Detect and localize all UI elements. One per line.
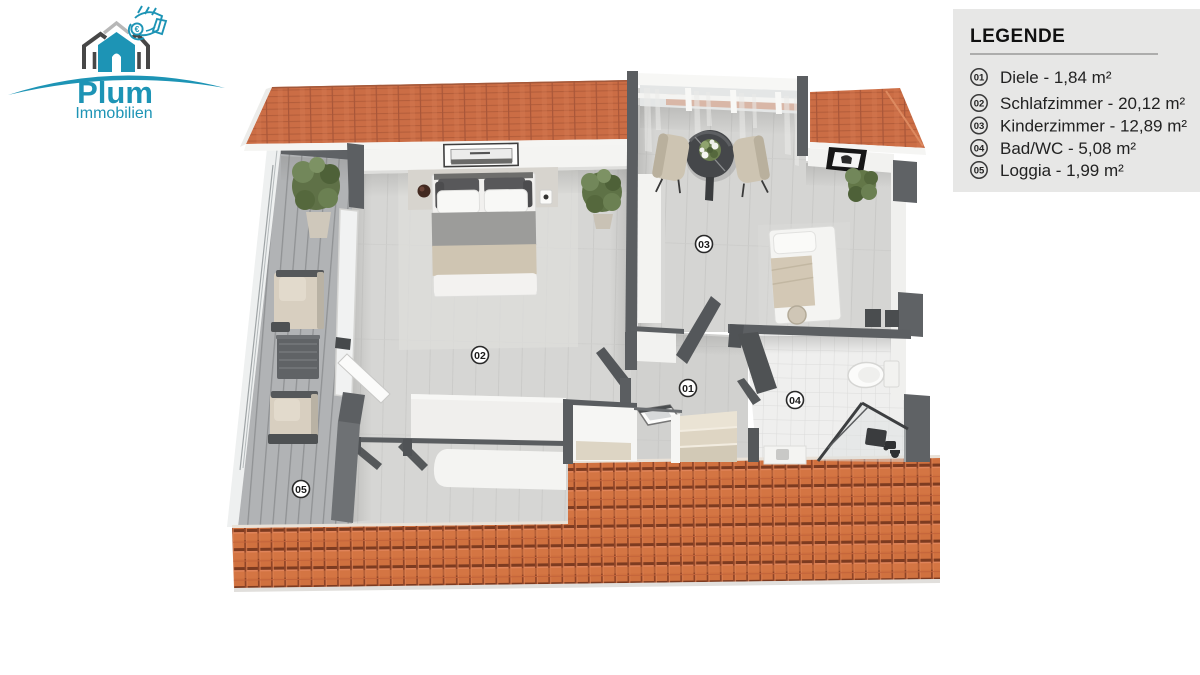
svg-text:Immobilien: Immobilien	[75, 105, 152, 122]
svg-text:03: 03	[698, 239, 710, 251]
svg-text:03: 03	[974, 121, 985, 132]
svg-text:Loggia - 1,99 m²: Loggia - 1,99 m²	[1000, 161, 1124, 180]
svg-text:Kinderzimmer - 12,89 m²: Kinderzimmer - 12,89 m²	[1000, 117, 1187, 136]
svg-text:02: 02	[474, 350, 486, 362]
svg-text:04: 04	[974, 144, 985, 155]
svg-text:01: 01	[682, 383, 694, 395]
svg-text:05: 05	[295, 484, 307, 496]
svg-text:Bad/WC - 5,08 m²: Bad/WC - 5,08 m²	[1000, 139, 1136, 158]
svg-text:€: €	[135, 24, 140, 34]
svg-text:04: 04	[789, 395, 801, 407]
svg-text:Diele - 1,84 m²: Diele - 1,84 m²	[1000, 68, 1112, 87]
svg-text:01: 01	[974, 73, 985, 84]
svg-text:Schlafzimmer - 20,12 m²: Schlafzimmer - 20,12 m²	[1000, 94, 1185, 113]
svg-text:05: 05	[974, 166, 985, 177]
svg-text:02: 02	[974, 99, 985, 110]
svg-text:LEGENDE: LEGENDE	[970, 26, 1065, 47]
